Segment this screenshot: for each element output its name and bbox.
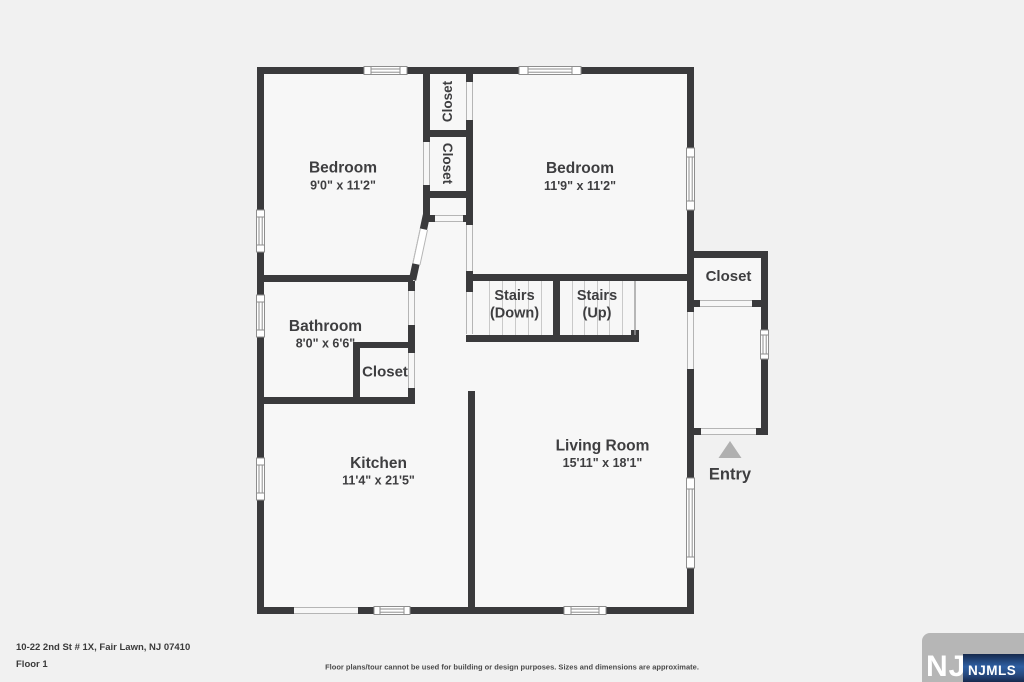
svg-text:Floor 1: Floor 1 (16, 659, 48, 670)
svg-text:15'11" x 18'1": 15'11" x 18'1" (563, 456, 643, 470)
svg-text:11'9" x 11'2": 11'9" x 11'2" (544, 179, 616, 193)
svg-text:Floor plans/tour cannot be use: Floor plans/tour cannot be used for buil… (325, 663, 699, 672)
svg-text:Stairs: Stairs (494, 288, 534, 304)
svg-text:(Down): (Down) (490, 306, 539, 322)
svg-text:8'0" x 6'6": 8'0" x 6'6" (296, 337, 356, 351)
svg-text:Closet: Closet (362, 364, 408, 381)
svg-text:(Up): (Up) (583, 306, 612, 322)
svg-text:Closet: Closet (440, 143, 455, 185)
svg-text:11'4" x 21'5": 11'4" x 21'5" (342, 474, 415, 488)
svg-text:Closet: Closet (706, 268, 752, 285)
svg-text:Kitchen: Kitchen (350, 455, 407, 472)
svg-text:Living Room: Living Room (556, 438, 650, 455)
svg-text:Bathroom: Bathroom (289, 318, 362, 335)
svg-text:9'0" x 11'2": 9'0" x 11'2" (310, 179, 376, 193)
svg-text:Bedroom: Bedroom (309, 160, 377, 177)
svg-text:Closet: Closet (440, 80, 455, 122)
svg-text:Stairs: Stairs (577, 288, 617, 304)
svg-text:10-22 2nd St # 1X, Fair Lawn,: 10-22 2nd St # 1X, Fair Lawn, NJ 07410 (16, 642, 190, 653)
svg-text:Bedroom: Bedroom (546, 160, 614, 177)
svg-text:Entry: Entry (709, 466, 752, 484)
svg-text:NJMLS: NJMLS (968, 663, 1016, 678)
